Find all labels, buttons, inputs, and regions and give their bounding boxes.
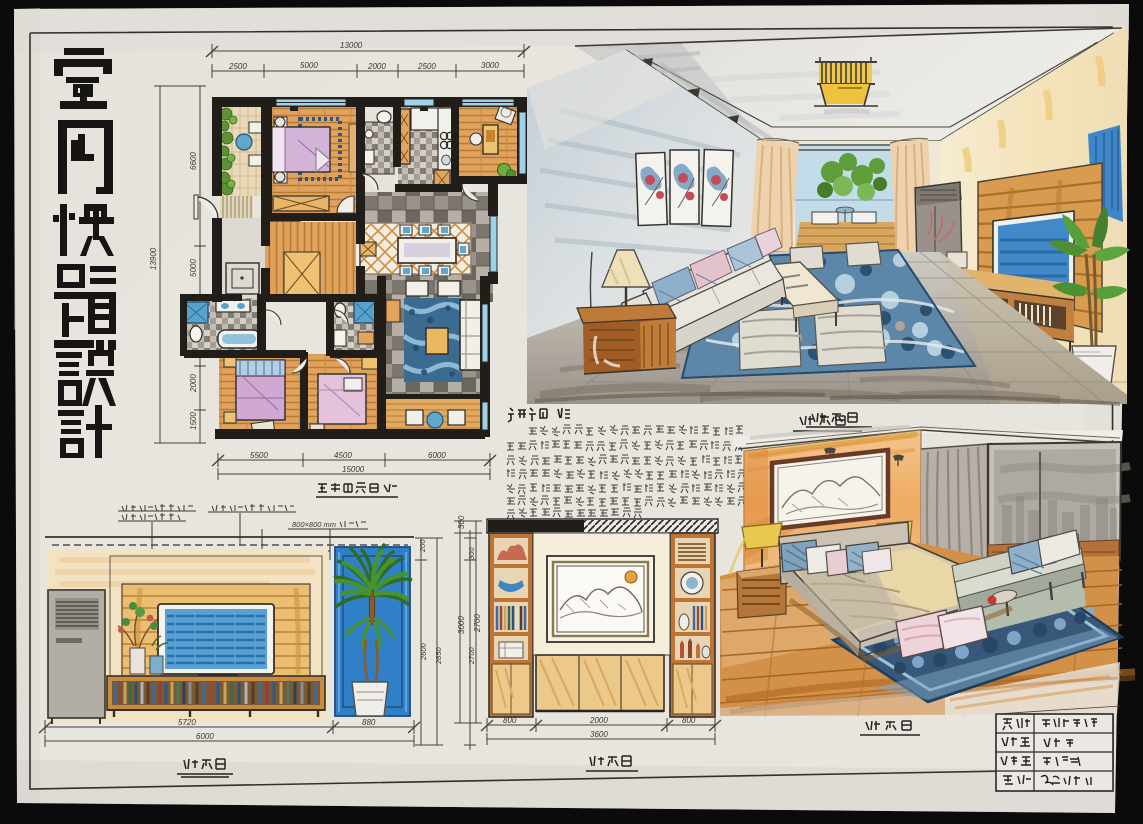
svg-text:800: 800	[682, 716, 696, 725]
svg-text:2000: 2000	[367, 62, 386, 71]
svg-text:200: 200	[418, 539, 427, 553]
svg-text:5000: 5000	[300, 61, 318, 70]
svg-text:3000: 3000	[457, 616, 466, 634]
svg-text:800×800 mm: 800×800 mm	[292, 520, 336, 529]
svg-text:6600: 6600	[189, 152, 198, 170]
svg-text:2600: 2600	[419, 642, 428, 661]
svg-text:5500: 5500	[250, 451, 268, 460]
svg-text:13000: 13000	[340, 41, 363, 50]
svg-text:2700: 2700	[473, 614, 482, 633]
svg-text:6000: 6000	[196, 732, 214, 741]
svg-text:2000: 2000	[189, 374, 198, 393]
svg-text:5000: 5000	[189, 259, 198, 277]
svg-text:2850: 2850	[434, 646, 443, 665]
svg-text:2000: 2000	[589, 716, 608, 725]
svg-text:13900: 13900	[149, 247, 158, 270]
svg-text:2700: 2700	[467, 646, 476, 665]
svg-text:1500: 1500	[189, 412, 198, 430]
svg-text:880: 880	[362, 718, 376, 727]
svg-text:5720: 5720	[178, 718, 196, 727]
svg-text:15000: 15000	[342, 465, 365, 474]
svg-text:800: 800	[503, 716, 517, 725]
svg-text:3600: 3600	[590, 730, 608, 739]
svg-text:300: 300	[467, 547, 476, 560]
svg-text:4500: 4500	[334, 451, 352, 460]
svg-text:2500: 2500	[228, 62, 247, 71]
svg-text:6000: 6000	[428, 451, 446, 460]
svg-text:2500: 2500	[417, 62, 436, 71]
svg-text:300: 300	[457, 515, 466, 529]
svg-text:3000: 3000	[481, 61, 499, 70]
